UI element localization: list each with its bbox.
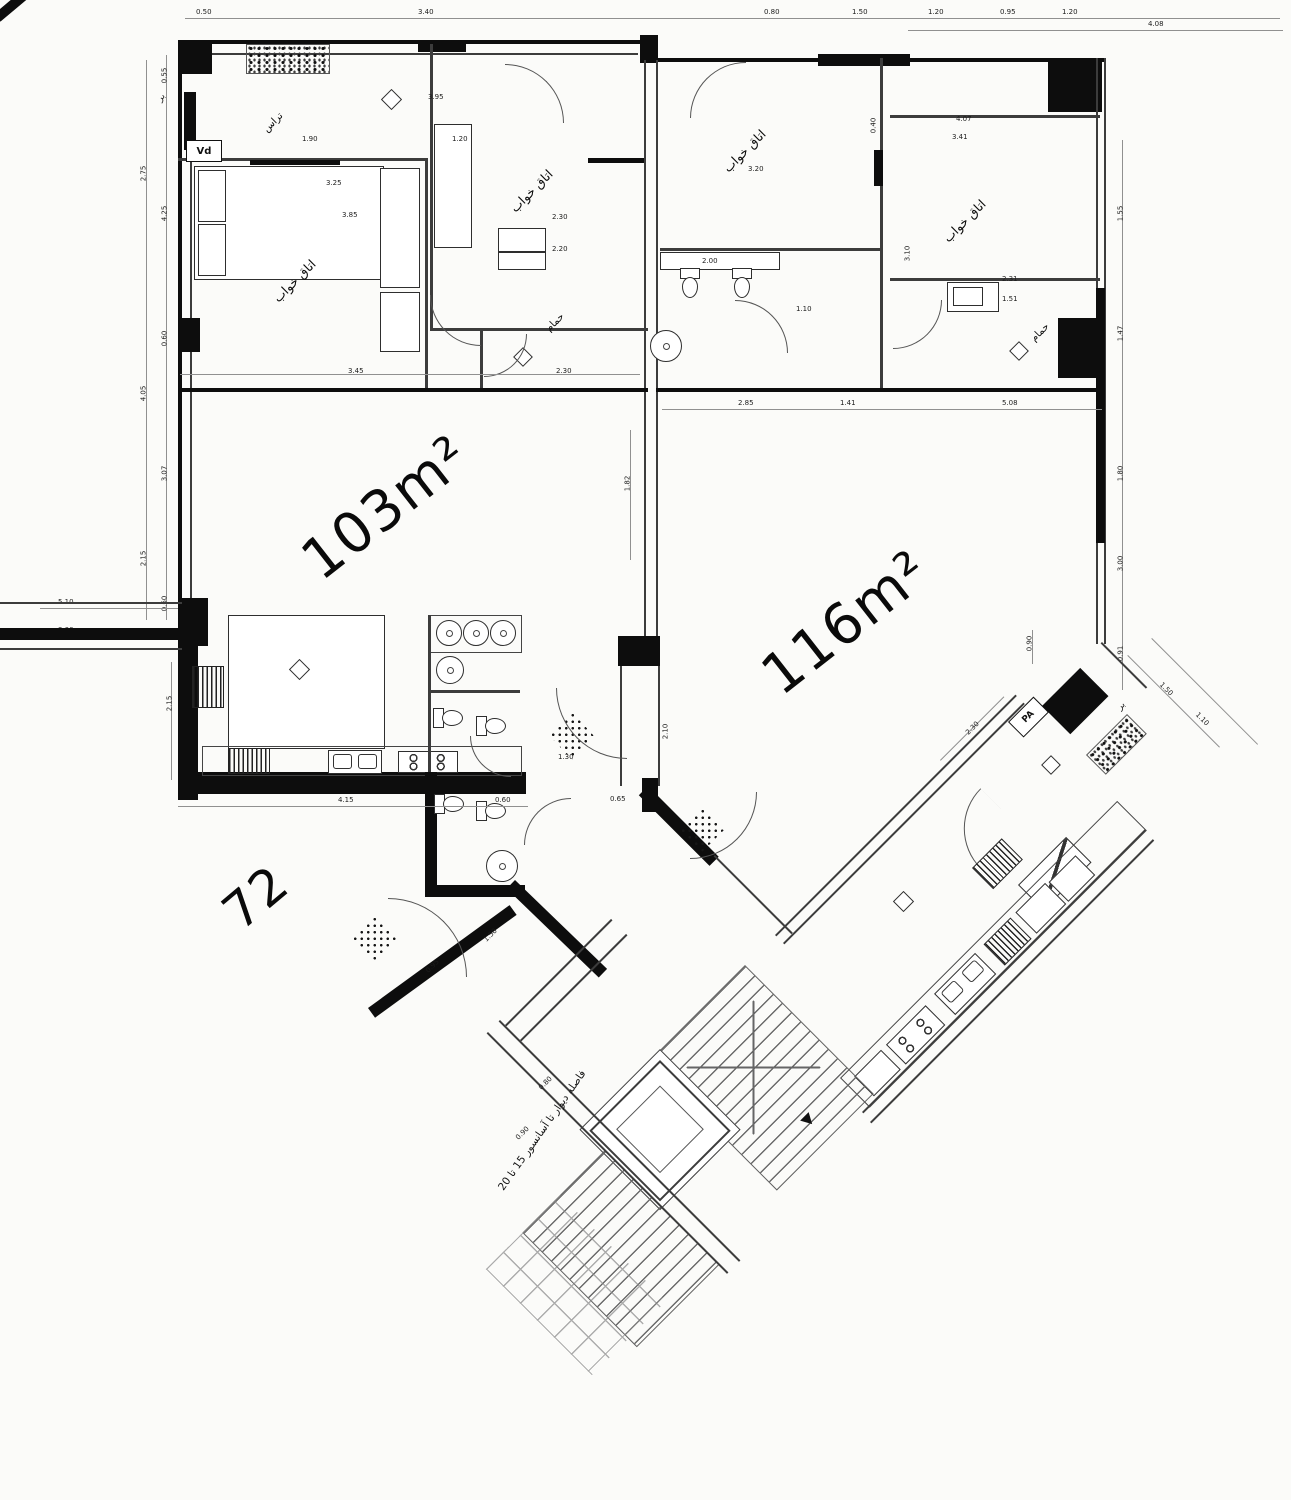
- wall-core: [644, 60, 646, 638]
- dimension-label: 2.00: [702, 258, 718, 265]
- dimension-label: 3.07: [161, 466, 168, 482]
- street-wall-line: [0, 602, 182, 604]
- dimension-label: 1.50: [852, 9, 868, 16]
- dimension-label: 0.65: [610, 796, 626, 803]
- dim-line-inner: [662, 409, 1102, 410]
- dimension-label: 3.85: [342, 212, 358, 219]
- dimension-label: 2.10: [662, 724, 669, 740]
- street-wall-line2: [0, 648, 182, 650]
- dimension-label: 0.60: [495, 797, 511, 804]
- floor-plan-canvas: 0.50 3.40 0.80 1.50 1.20 0.95 1.20 4.08 …: [0, 0, 1291, 1500]
- dim-line-bottom: [178, 806, 528, 807]
- toilet-icon: [433, 706, 465, 730]
- bedroom-label: اتاق خواب: [508, 168, 555, 215]
- toilet-icon: [434, 792, 466, 816]
- door-arc: [484, 334, 527, 377]
- wall-diagonal-thick: [507, 880, 607, 978]
- door-arc: [524, 798, 571, 845]
- wall-living-top-right: [656, 388, 1104, 392]
- column: [180, 318, 200, 352]
- wardrobe: [380, 168, 420, 288]
- door-arc: [690, 792, 757, 859]
- bidet-icon: [730, 268, 754, 300]
- door-arc: [893, 300, 942, 349]
- column: [180, 42, 212, 74]
- bowl-icon: [463, 620, 489, 646]
- diamond-symbol: [381, 89, 402, 110]
- bidet-icon: [476, 714, 508, 738]
- sink-icon: [486, 850, 518, 882]
- dimension-label: 1.55: [1117, 206, 1124, 222]
- dimension-label: 4.07: [956, 116, 972, 123]
- dimension-label: 0.55: [161, 68, 168, 84]
- dim-line-top: [185, 18, 1280, 19]
- door-arc: [735, 300, 788, 353]
- bowl-icon: [490, 620, 516, 646]
- dimension-label: 1.41: [840, 400, 856, 407]
- diamond-symbol: [1009, 341, 1029, 361]
- dimension-label: 1.20: [1062, 9, 1078, 16]
- dimension-label: 2.30: [552, 214, 568, 221]
- window-segment: [588, 158, 644, 163]
- cabinet: [380, 292, 420, 352]
- dimension-label: 2.30: [965, 721, 981, 737]
- dim-line-right: [1122, 140, 1123, 690]
- wall-wc-strip: [660, 248, 880, 251]
- dimension-label: 4.08: [1148, 21, 1164, 28]
- wall-header: [618, 636, 660, 666]
- kitchen-island: [228, 615, 385, 749]
- dimension-label: 4.05: [140, 386, 147, 402]
- wall-bedroom-tr2-top: [890, 115, 1100, 118]
- dimension-label: 0.90: [1026, 636, 1033, 652]
- sink-icon: [436, 656, 464, 684]
- toilet-icon: [678, 268, 702, 300]
- bedroom-label: اتاق خواب: [941, 198, 988, 245]
- dim-line-inner2: [180, 374, 640, 375]
- pillow: [198, 224, 226, 276]
- dim-line-left-bottom: [171, 662, 172, 780]
- column: [1042, 668, 1108, 734]
- elevator-cab: [616, 1085, 704, 1173]
- dimension-label: 0.80: [764, 9, 780, 16]
- sink-icon: [650, 330, 682, 362]
- column: [1058, 318, 1100, 378]
- corner-mark: [0, 0, 40, 22]
- diamond-symbol: [1041, 755, 1061, 775]
- wall-bedroom-tl-right: [425, 158, 428, 390]
- vd-tag-box: Vd: [186, 140, 222, 162]
- dim-line-inner3: [630, 430, 631, 560]
- window-segment: [874, 150, 883, 186]
- terrace-label: تراس: [262, 111, 286, 135]
- wall-living-top-left: [178, 388, 648, 392]
- dimension-label: 1.90: [302, 136, 318, 143]
- dimension-label: 0.40: [870, 118, 877, 134]
- dimension-label: 1.51: [1002, 296, 1018, 303]
- door-arc: [430, 295, 481, 346]
- kitchen-cabinet-hatch: [228, 748, 270, 774]
- edge-tag: بر: [1116, 701, 1128, 713]
- desk: [498, 252, 546, 270]
- street-wall: [0, 628, 182, 640]
- column: [640, 35, 658, 63]
- dimension-label: 2.85: [738, 400, 754, 407]
- dimension-label: 1.50: [1158, 682, 1174, 698]
- dimension-label: 0.95: [1000, 9, 1016, 16]
- pillow: [198, 170, 226, 222]
- wall-wc1-divider: [428, 690, 520, 693]
- wall-wc2-left-thick: [425, 772, 437, 897]
- dimension-label: 1.80: [1117, 466, 1124, 482]
- kitchen-sink-icon: [328, 750, 382, 774]
- door-arc: [690, 62, 746, 118]
- dimension-label: 3.40: [418, 9, 434, 16]
- column: [178, 598, 208, 646]
- area-label-partial: 72: [214, 857, 298, 939]
- wing-wall-se2: [870, 839, 1154, 1123]
- dimension-label: 0.60: [161, 331, 168, 347]
- wing-wall-link: [714, 855, 793, 934]
- dimension-label: 2.75: [140, 166, 147, 182]
- dimension-label: 1.82: [624, 476, 631, 492]
- dimension-label: 1.47: [1117, 326, 1124, 342]
- dimension-label: 1.20: [452, 136, 468, 143]
- wall-shaft2: [658, 666, 660, 786]
- dim-line-left-outer: [146, 60, 147, 620]
- dimension-label: 3.95: [428, 94, 444, 101]
- entry-hatch: [1086, 714, 1147, 775]
- dim-line-top2: [908, 30, 1283, 31]
- window-segment: [250, 160, 340, 165]
- dimension-label: 3.00: [1117, 556, 1124, 572]
- dimension-label: 1.20: [928, 9, 944, 16]
- wall-bedroom-tm-left: [430, 44, 433, 330]
- dimension-label: 5.08: [1002, 400, 1018, 407]
- dimension-label: 0.50: [196, 9, 212, 16]
- wall-wc1: [428, 615, 431, 775]
- window-segment: [418, 44, 466, 52]
- dimension-label: 3.41: [952, 134, 968, 141]
- bathroom-label: حمام: [1030, 322, 1052, 344]
- stair-direction-arrow: [800, 1112, 816, 1128]
- window-segment: [818, 54, 910, 66]
- bath-sink-basin: [953, 287, 983, 306]
- desk: [498, 228, 546, 252]
- wall-bedrooms-divider: [880, 58, 883, 390]
- pa-tag-box: PA: [1008, 697, 1049, 738]
- dim-line-left-low1: [40, 608, 178, 609]
- dimension-label: 4.15: [338, 797, 354, 804]
- area-label-right: 116m²: [753, 542, 940, 705]
- dimension-label: 2.20: [552, 246, 568, 253]
- radiator-icon: [192, 666, 224, 708]
- column: [1048, 58, 1102, 112]
- dimension-label: 2.15: [140, 551, 147, 567]
- dimension-label: 3.25: [326, 180, 342, 187]
- cabinet-hatch: [984, 917, 1032, 965]
- dimension-label: 3.20: [748, 166, 764, 173]
- dimension-label: 2.15: [166, 696, 173, 712]
- bowl-icon: [436, 620, 462, 646]
- dimension-label: 1.10: [796, 306, 812, 313]
- door-arc: [505, 64, 564, 123]
- area-label-left: 103m²: [293, 427, 480, 590]
- dimension-label: 1.30: [558, 754, 574, 761]
- dimension-label: 4.25: [161, 206, 168, 222]
- terrace-planting-hatch: [246, 44, 330, 74]
- dimension-label: 2.31: [1002, 276, 1018, 283]
- diamond-symbol: [893, 891, 914, 912]
- dimension-label: 3.10: [904, 246, 911, 262]
- wall-bath-tr2: [890, 278, 1100, 281]
